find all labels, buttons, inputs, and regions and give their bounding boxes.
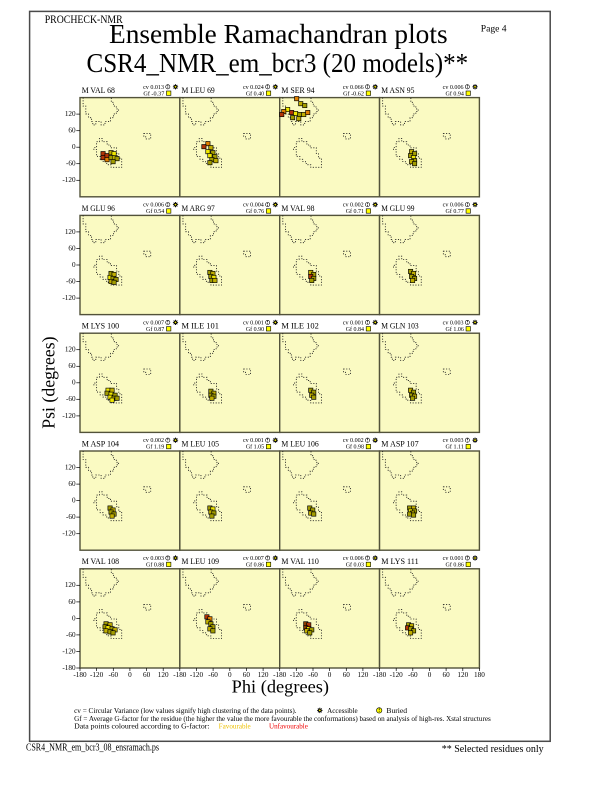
svg-text:-60: -60 — [408, 671, 418, 679]
svg-text:** Selected residues only: ** Selected residues only — [442, 744, 544, 755]
svg-text:Gf 0.98: Gf 0.98 — [346, 444, 364, 451]
svg-text:M ASN 95: M ASN 95 — [381, 86, 414, 95]
svg-text:Gf 0.71: Gf 0.71 — [346, 208, 364, 215]
svg-text:M ARG 97: M ARG 97 — [182, 204, 215, 213]
svg-text:M ILE 102: M ILE 102 — [281, 322, 318, 331]
svg-text:cv 0.003: cv 0.003 — [443, 438, 464, 444]
svg-text:M GLU 99: M GLU 99 — [381, 204, 414, 213]
svg-text:-180: -180 — [373, 671, 387, 679]
svg-text:120: 120 — [65, 346, 76, 354]
svg-text:60: 60 — [68, 480, 76, 488]
svg-text:Accessible: Accessible — [327, 708, 358, 715]
svg-text:cv 0.006: cv 0.006 — [343, 556, 364, 562]
svg-text:cv 0.001: cv 0.001 — [243, 320, 264, 326]
svg-text:60: 60 — [343, 671, 351, 679]
svg-text:-120: -120 — [390, 671, 404, 679]
svg-text:M LEU 69: M LEU 69 — [182, 86, 215, 95]
svg-text:Gf -0.37: Gf -0.37 — [143, 90, 164, 97]
svg-text:Gf 0.54: Gf 0.54 — [146, 208, 164, 215]
svg-text:Gf 0.86: Gf 0.86 — [446, 562, 464, 569]
svg-text:-60: -60 — [109, 671, 119, 679]
svg-text:Gf 1.05: Gf 1.05 — [246, 444, 264, 451]
svg-text:-120: -120 — [62, 176, 76, 184]
svg-text:Gf 0.03: Gf 0.03 — [346, 562, 364, 569]
svg-text:M GLN 103: M GLN 103 — [381, 322, 418, 331]
svg-text:Ensemble Ramachandran plots: Ensemble Ramachandran plots — [109, 18, 448, 49]
svg-text:0: 0 — [428, 671, 432, 679]
svg-text:Unfavourable: Unfavourable — [269, 724, 308, 731]
svg-text:-60: -60 — [66, 277, 76, 285]
svg-text:-60: -60 — [66, 513, 76, 521]
svg-text:-120: -120 — [90, 671, 104, 679]
svg-text:cv 0.002: cv 0.002 — [143, 438, 164, 444]
svg-text:Gf 0.86: Gf 0.86 — [246, 562, 264, 569]
svg-text:M VAL 98: M VAL 98 — [281, 204, 314, 213]
svg-text:Gf 0.87: Gf 0.87 — [146, 326, 164, 333]
svg-text:cv 0.024: cv 0.024 — [243, 85, 264, 91]
svg-text:-120: -120 — [62, 647, 76, 655]
svg-text:Gf 0.94: Gf 0.94 — [446, 90, 464, 97]
svg-text:-60: -60 — [208, 671, 218, 679]
svg-text:-120: -120 — [62, 294, 76, 302]
svg-text:CSR4_NMR_em_bcr3_08_ensramach.: CSR4_NMR_em_bcr3_08_ensramach.ps — [26, 743, 159, 754]
svg-text:120: 120 — [65, 463, 76, 471]
svg-text:M ASP 107: M ASP 107 — [381, 439, 418, 448]
svg-text:60: 60 — [68, 362, 76, 370]
svg-text:Gf -0.62: Gf -0.62 — [343, 90, 364, 97]
svg-text:60: 60 — [68, 244, 76, 252]
svg-text:M VAL 68: M VAL 68 — [82, 86, 115, 95]
svg-text:180: 180 — [474, 671, 485, 679]
svg-text:0: 0 — [128, 671, 132, 679]
svg-text:cv 0.006: cv 0.006 — [443, 85, 464, 91]
svg-text:M ILE 101: M ILE 101 — [182, 322, 219, 331]
svg-text:cv 0.006: cv 0.006 — [443, 203, 464, 209]
svg-text:Gf 0.88: Gf 0.88 — [146, 562, 164, 569]
svg-text:cv 0.002: cv 0.002 — [343, 438, 364, 444]
svg-text:Gf 0.76: Gf 0.76 — [246, 208, 264, 215]
svg-text:cv 0.001: cv 0.001 — [243, 438, 264, 444]
svg-text:120: 120 — [358, 671, 369, 679]
svg-text:M SER 94: M SER 94 — [281, 86, 315, 95]
svg-text:Gf 0.77: Gf 0.77 — [446, 208, 464, 215]
svg-text:Gf 0.90: Gf 0.90 — [246, 326, 264, 333]
svg-text:-180: -180 — [173, 671, 187, 679]
svg-text:-120: -120 — [190, 671, 204, 679]
svg-text:M GLU 96: M GLU 96 — [82, 204, 115, 213]
svg-text:120: 120 — [65, 228, 76, 236]
svg-text:0: 0 — [72, 379, 76, 387]
svg-text:cv 0.002: cv 0.002 — [343, 203, 364, 209]
svg-text:cv 0.003: cv 0.003 — [143, 556, 164, 562]
svg-text:cv 0.003: cv 0.003 — [443, 320, 464, 326]
svg-text:cv 0.013: cv 0.013 — [143, 85, 164, 91]
svg-text:-120: -120 — [62, 412, 76, 420]
svg-text:CSR4_NMR_em_bcr3 (20 models)**: CSR4_NMR_em_bcr3 (20 models)** — [87, 47, 469, 78]
svg-text:Gf 1.11: Gf 1.11 — [446, 444, 464, 451]
svg-text:Buried: Buried — [386, 708, 407, 715]
svg-text:M VAL 110: M VAL 110 — [281, 557, 318, 566]
svg-text:cv = Circular Variance (low va: cv = Circular Variance (low values signi… — [74, 708, 297, 715]
svg-text:Gf = Average G-factor for the: Gf = Average G-factor for the residue (t… — [74, 716, 491, 723]
svg-text:Gf 1.19: Gf 1.19 — [146, 444, 164, 451]
svg-text:cv 0.006: cv 0.006 — [143, 203, 164, 209]
svg-text:Gf 0.84: Gf 0.84 — [346, 326, 364, 333]
svg-text:60: 60 — [68, 598, 76, 606]
svg-text:60: 60 — [143, 671, 151, 679]
svg-text:Page 4: Page 4 — [481, 23, 507, 33]
svg-text:M LEU 106: M LEU 106 — [281, 439, 318, 448]
svg-text:0: 0 — [72, 143, 76, 151]
svg-text:0: 0 — [72, 497, 76, 505]
svg-text:M LYS 111: M LYS 111 — [381, 557, 418, 566]
svg-text:0: 0 — [72, 261, 76, 269]
svg-text:120: 120 — [457, 671, 468, 679]
svg-text:60: 60 — [443, 671, 451, 679]
svg-text:cv 0.007: cv 0.007 — [243, 556, 264, 562]
svg-text:cv 0.066: cv 0.066 — [343, 85, 364, 91]
svg-text:-180: -180 — [73, 671, 87, 679]
svg-text:M VAL 108: M VAL 108 — [82, 557, 119, 566]
svg-text:M LEU 109: M LEU 109 — [182, 557, 219, 566]
svg-text:Phi (degrees): Phi (degrees) — [232, 676, 329, 696]
svg-text:cv 0.001: cv 0.001 — [343, 320, 364, 326]
svg-text:60: 60 — [68, 127, 76, 135]
svg-text:120: 120 — [158, 671, 169, 679]
svg-text:-60: -60 — [66, 631, 76, 639]
svg-text:-120: -120 — [62, 530, 76, 538]
svg-text:M LYS 100: M LYS 100 — [82, 322, 119, 331]
svg-text:Favourable: Favourable — [219, 724, 251, 731]
svg-text:M LEU 105: M LEU 105 — [182, 439, 219, 448]
svg-text:120: 120 — [65, 581, 76, 589]
svg-text:cv 0.001: cv 0.001 — [443, 556, 464, 562]
svg-text:Psi (degrees): Psi (degrees) — [39, 336, 59, 428]
svg-text:-60: -60 — [66, 395, 76, 403]
svg-text:cv 0.007: cv 0.007 — [143, 320, 164, 326]
svg-text:0: 0 — [72, 614, 76, 622]
svg-text:-60: -60 — [66, 160, 76, 168]
svg-text:120: 120 — [65, 110, 76, 118]
svg-text:cv 0.004: cv 0.004 — [243, 203, 264, 209]
svg-text:Gf 0.40: Gf 0.40 — [246, 90, 264, 97]
svg-text:Gf 1.06: Gf 1.06 — [446, 326, 464, 333]
svg-text:Data points coloured according: Data points coloured according to G-fact… — [74, 724, 210, 731]
svg-text:M ASP 104: M ASP 104 — [82, 439, 120, 448]
